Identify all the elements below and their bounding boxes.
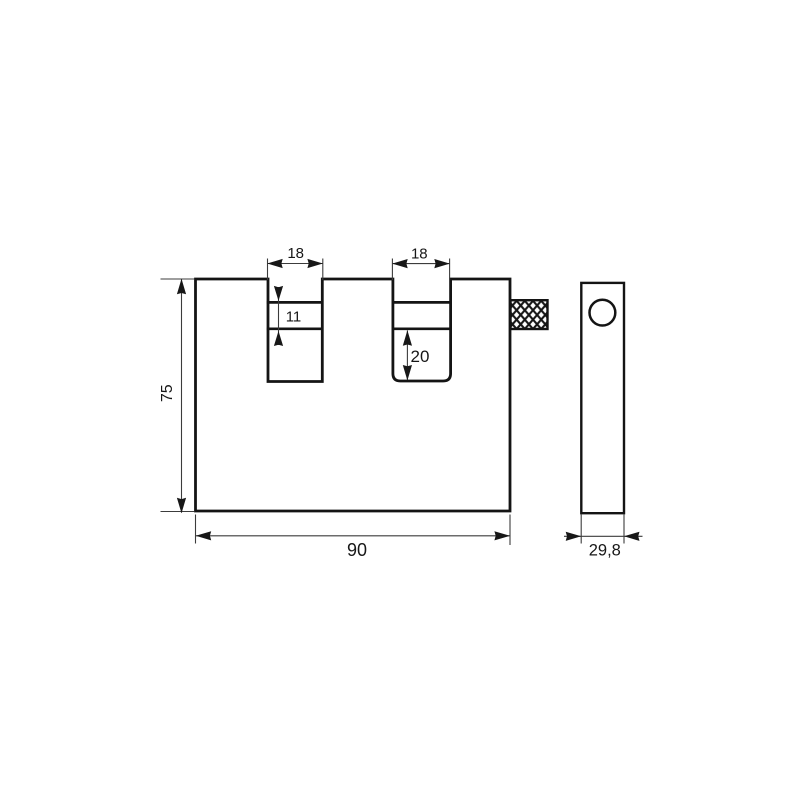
svg-text:20: 20 <box>411 347 430 366</box>
svg-text:11: 11 <box>286 308 302 325</box>
svg-text:18: 18 <box>287 245 304 262</box>
svg-text:18: 18 <box>411 245 428 262</box>
svg-text:90: 90 <box>347 540 367 560</box>
svg-text:75: 75 <box>159 384 176 402</box>
svg-text:29,8: 29,8 <box>589 542 621 560</box>
